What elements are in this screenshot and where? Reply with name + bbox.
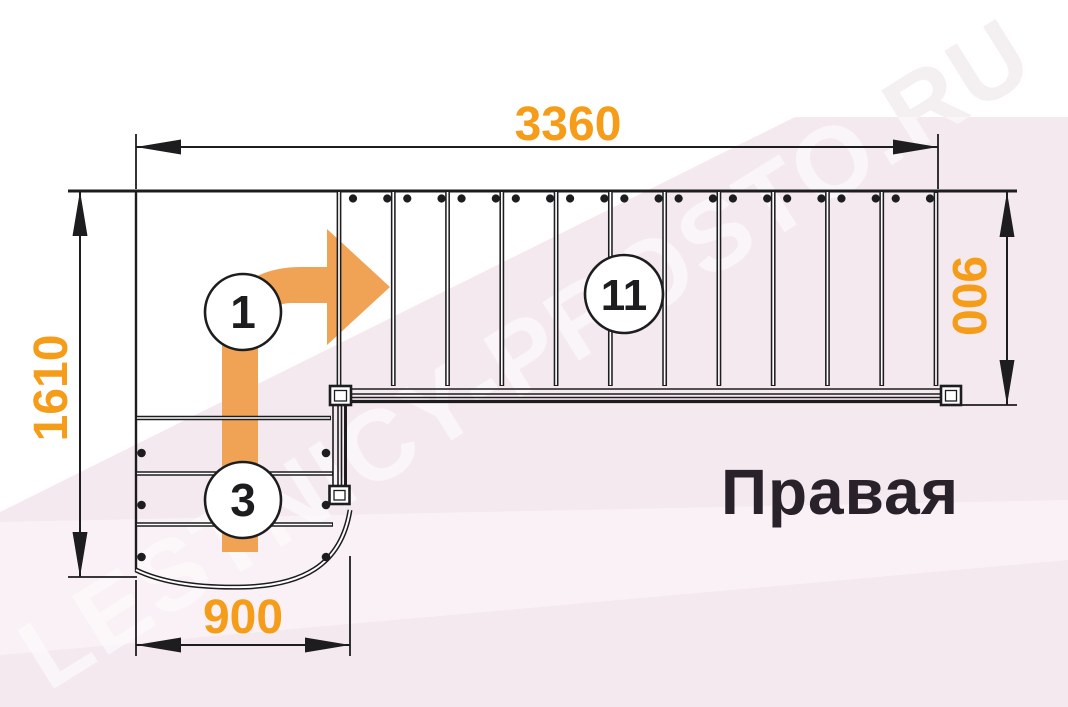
tread-dot — [709, 194, 717, 202]
tread-dot — [383, 194, 391, 202]
tread-dot — [620, 194, 628, 202]
tread-dot — [837, 194, 845, 202]
dimension-label-total-width: 1610 — [25, 335, 78, 442]
dim-arrow-left — [136, 140, 181, 155]
tread-dot — [729, 194, 737, 202]
side-label: Правая — [721, 456, 959, 528]
step3-badge-label: 3 — [230, 474, 256, 526]
staircase-plan-svg: LESTNICY-PROSTO.RU LESTNICY-PROSTO.RU — [0, 0, 1068, 707]
tread-dot — [349, 194, 357, 202]
tread-dot — [512, 194, 520, 202]
tread-dot — [492, 194, 500, 202]
newel-post-left-inner — [335, 391, 347, 402]
step11-badge-label: 11 — [601, 271, 648, 320]
tread-dot — [403, 194, 411, 202]
dimension-label-lower-flight-width: 900 — [203, 591, 283, 644]
tread-dot — [600, 194, 608, 202]
dimension-label-total-length: 3360 — [515, 98, 622, 151]
newel-post-right-inner — [946, 391, 957, 402]
newel-post-bottom-inner — [334, 491, 345, 501]
tread-dot — [763, 194, 771, 202]
dimension-label-upper-flight-width: 900 — [942, 256, 995, 336]
tread-dot — [783, 194, 791, 202]
tread-dot — [546, 194, 554, 202]
tread-dot — [566, 194, 574, 202]
tread-dot — [926, 194, 934, 202]
tread-dot — [655, 194, 663, 202]
dim-arrow-up — [73, 191, 88, 236]
tread-dot — [457, 194, 465, 202]
tread-dot — [675, 194, 683, 202]
staircase-drawing-canvas: LESTNICY-PROSTO.RU LESTNICY-PROSTO.RU — [0, 0, 1068, 707]
tread-dot — [872, 194, 880, 202]
tread-dot — [892, 194, 900, 202]
tread-dot — [437, 194, 445, 202]
step1-badge-label: 1 — [230, 286, 256, 338]
tread-dot — [817, 194, 825, 202]
